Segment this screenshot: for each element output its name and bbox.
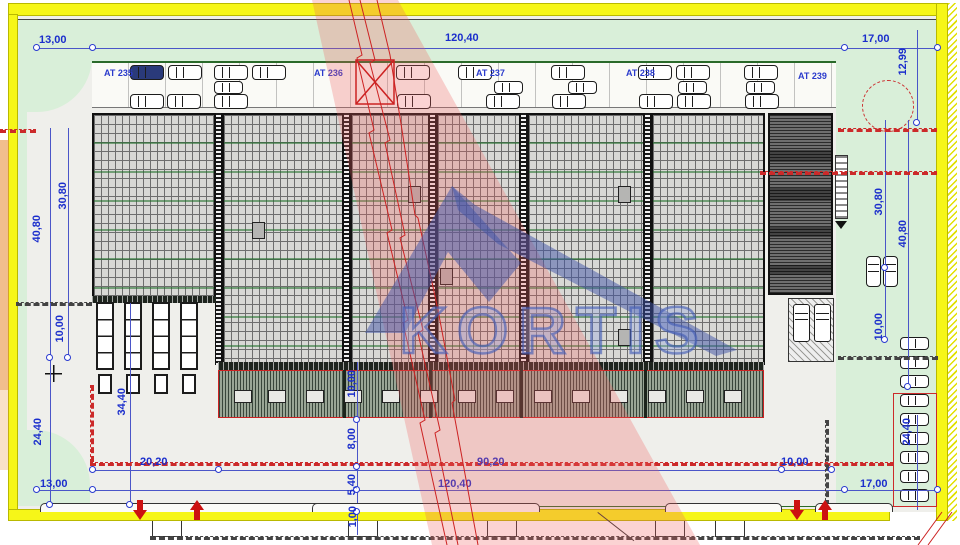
boundary-road-right	[936, 3, 948, 521]
warehouse-hall-6	[651, 113, 765, 365]
drawing-line	[825, 420, 829, 506]
roof-hatch-icon	[440, 268, 453, 285]
road-stub	[487, 521, 517, 537]
dimension-label: 20,20	[140, 457, 168, 468]
drawing-line	[917, 30, 918, 125]
car-icon	[678, 81, 707, 94]
roof-joint-strip	[429, 113, 436, 365]
arrow-head	[133, 510, 147, 520]
trailer-icon	[420, 390, 438, 403]
warehouse-hall-3	[350, 113, 430, 365]
dimension-label: 5,40	[347, 474, 358, 495]
curb-island	[665, 503, 782, 512]
dimension-label: 1,00	[348, 506, 359, 527]
car-icon	[677, 94, 711, 109]
car-icon	[900, 337, 929, 350]
dimension-label: 13,00	[39, 35, 67, 46]
dimension-label: 10,00	[55, 315, 66, 343]
dimension-label: 34,40	[117, 388, 128, 416]
curb-island	[40, 503, 332, 512]
trailer-icon	[534, 390, 552, 403]
car-icon	[552, 94, 586, 109]
drawing-line	[908, 120, 909, 387]
drawing-line	[92, 61, 836, 63]
trailer-icon	[648, 390, 666, 403]
roof-hatch-icon	[408, 186, 421, 203]
car-icon	[130, 65, 164, 80]
drawing-line	[838, 128, 937, 132]
dimension-marker	[126, 501, 133, 508]
drawing-line	[16, 302, 92, 306]
dock-doors-south	[218, 362, 764, 370]
trailer-icon	[382, 390, 400, 403]
drawing-line	[37, 490, 938, 491]
car-icon	[745, 94, 779, 109]
truck-icon	[96, 302, 114, 370]
dimension-marker	[64, 354, 71, 361]
van-icon	[793, 304, 810, 342]
dimension-label: 30,80	[58, 182, 69, 210]
drawing-line	[130, 303, 131, 508]
dimension-label: 12,99	[898, 48, 909, 76]
car-icon	[676, 65, 710, 80]
dock-bay-divider	[644, 370, 647, 418]
left-margin-marker	[0, 140, 9, 390]
road-stub	[715, 521, 745, 537]
warehouse-hall-4	[436, 113, 521, 365]
warehouse-hall-5	[527, 113, 645, 365]
car-icon	[130, 94, 164, 109]
trailer-icon	[724, 390, 742, 403]
parking-zone-label: AT 235	[104, 68, 133, 78]
car-icon	[397, 94, 431, 109]
roof-joint-strip	[520, 113, 527, 365]
parking-zone-label: AT 239	[798, 71, 827, 81]
dimension-marker	[904, 383, 911, 390]
dimension-marker	[353, 463, 360, 470]
car-icon	[252, 65, 286, 80]
car-icon	[568, 81, 597, 94]
turning-radius-circle	[862, 80, 914, 132]
site-plan-drawing: AT 235AT 236AT 237AT 238AT 239	[0, 0, 960, 545]
car-icon	[866, 256, 881, 287]
car-icon	[551, 65, 585, 80]
drawing-line	[37, 48, 938, 49]
road-stub	[655, 521, 685, 537]
dimension-label: 30,80	[874, 188, 885, 216]
car-icon	[396, 65, 430, 80]
dimension-marker	[881, 264, 888, 271]
drawing-line	[838, 356, 938, 360]
dimension-label: 40,80	[32, 215, 43, 243]
dimension-marker	[841, 486, 848, 493]
parking-zone-label: AT 236	[314, 68, 343, 78]
arrow-stem	[194, 509, 200, 520]
dimension-label: 10,00	[874, 313, 885, 341]
arrow-head	[790, 510, 804, 520]
survey-cross-icon	[45, 365, 62, 382]
trailer-icon	[458, 390, 476, 403]
trailer-icon	[572, 390, 590, 403]
car-icon	[486, 94, 520, 109]
stairs-icon	[835, 155, 848, 219]
roof-joint-strip	[343, 113, 350, 365]
dimension-label: 120,40	[445, 33, 479, 44]
dimension-label: 120,40	[438, 479, 472, 490]
car-icon	[639, 94, 673, 109]
car-icon	[744, 65, 778, 80]
dimension-marker	[353, 416, 360, 423]
annex-building	[768, 113, 833, 295]
dimension-marker	[89, 486, 96, 493]
trailer-icon	[234, 390, 252, 403]
trailer-icon	[268, 390, 286, 403]
car-icon	[167, 94, 201, 109]
warehouse-hall-1	[92, 113, 216, 301]
dimension-label: 8,00	[347, 428, 358, 449]
dock-bay-divider	[520, 370, 523, 418]
dimension-marker	[89, 466, 96, 473]
dimension-label: 90,20	[477, 457, 505, 468]
drawing-line	[150, 536, 920, 540]
dimension-label: 17,00	[862, 34, 890, 45]
roof-joint-strip	[215, 113, 222, 365]
dimension-label: 10,00	[781, 457, 809, 468]
drawing-line	[885, 120, 886, 342]
parking-highlight-box	[893, 393, 937, 507]
dimension-marker	[89, 44, 96, 51]
truck-icon	[124, 302, 142, 370]
dimension-marker	[46, 501, 53, 508]
dimension-label: 17,00	[860, 479, 888, 490]
stairs-direction-arrow	[835, 221, 847, 229]
dimension-marker	[215, 466, 222, 473]
drawing-line	[0, 129, 36, 133]
drawing-line	[90, 385, 94, 462]
car-icon	[746, 81, 775, 94]
truck-icon	[180, 302, 198, 370]
trailer-icon	[610, 390, 628, 403]
parking-zone-label: AT 238	[626, 68, 655, 78]
car-icon	[214, 81, 243, 94]
dimension-label: 24,40	[902, 418, 913, 446]
trailer-icon	[306, 390, 324, 403]
roof-hatch-icon	[252, 222, 265, 239]
boundary-hatch-right	[948, 3, 957, 521]
roof-hatch-icon	[618, 329, 631, 346]
boundary-road-top	[8, 3, 944, 16]
dimension-label: 13,00	[40, 479, 68, 490]
arrow-stem	[794, 500, 800, 511]
dimension-marker	[46, 354, 53, 361]
roof-joint-strip	[644, 113, 651, 365]
arrow-stem	[137, 500, 143, 511]
truck-icon	[152, 302, 170, 370]
drawing-line	[93, 470, 832, 471]
warehouse-hall-2	[222, 113, 344, 365]
boundary-road-left	[8, 14, 18, 521]
dimension-label: 24,40	[33, 418, 44, 446]
drawing-line	[18, 19, 936, 20]
car-icon	[214, 94, 248, 109]
drawing-line	[760, 171, 937, 175]
dimension-marker	[934, 486, 941, 493]
car-icon	[494, 81, 523, 94]
drawing-line	[50, 128, 51, 505]
arrow-stem	[822, 509, 828, 520]
dimension-label: 40,80	[898, 220, 909, 248]
trailer-parking-strip	[218, 370, 764, 418]
dimension-marker	[913, 119, 920, 126]
dimension-label: 10,00	[347, 370, 358, 398]
car-icon	[168, 65, 202, 80]
parking-zone-label: AT 237	[476, 68, 505, 78]
roof-hatch-icon	[618, 186, 631, 203]
trailer-icon	[496, 390, 514, 403]
trailer-icon	[686, 390, 704, 403]
dimension-marker	[33, 486, 40, 493]
van-icon	[814, 304, 831, 342]
dimension-marker	[934, 44, 941, 51]
car-icon	[214, 65, 248, 80]
drawing-line	[68, 128, 69, 358]
dimension-marker	[841, 44, 848, 51]
dimension-marker	[828, 466, 835, 473]
left-margin-marker-faint	[0, 390, 9, 470]
road-stub	[152, 521, 182, 537]
